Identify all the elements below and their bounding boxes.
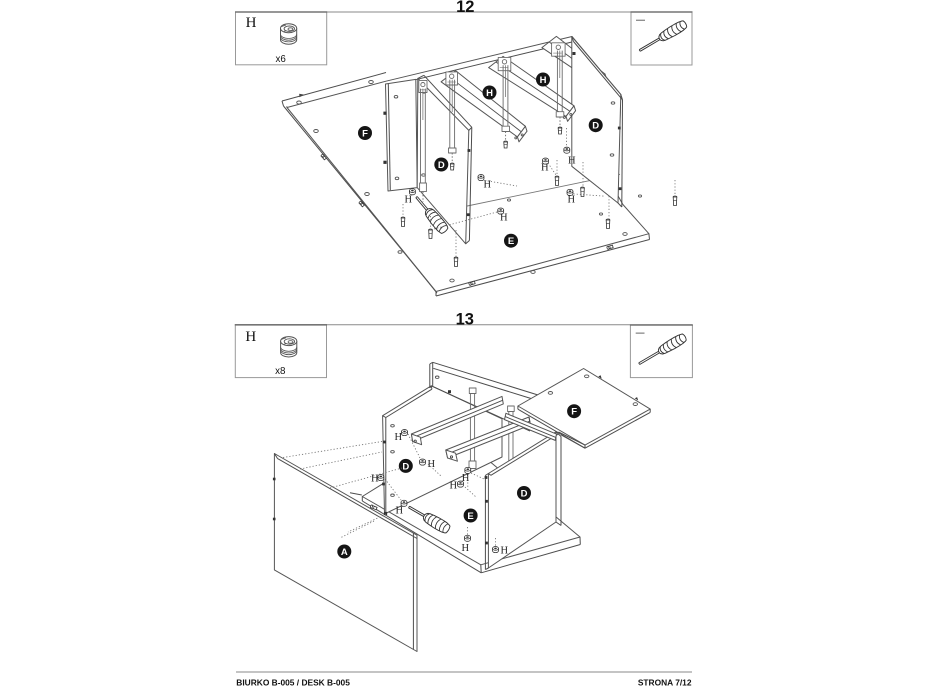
svg-text:A: A [341,547,348,558]
svg-text:H: H [462,543,470,554]
svg-text:H: H [450,481,458,492]
svg-text:H: H [395,432,403,443]
svg-text:x8: x8 [275,366,286,377]
svg-text:D: D [592,121,599,132]
svg-text:BIURKO B-005 / DESK B-005: BIURKO B-005 / DESK B-005 [236,678,350,686]
svg-text:H: H [501,546,509,557]
svg-text:H: H [568,156,576,167]
svg-text:H: H [405,195,413,206]
svg-text:H: H [396,506,404,517]
svg-text:D: D [438,160,445,171]
svg-text:D: D [402,461,409,472]
svg-text:STRONA 7/12: STRONA 7/12 [638,678,692,686]
svg-text:13: 13 [456,310,474,328]
svg-text:H: H [371,474,379,485]
svg-text:H: H [245,329,256,345]
svg-text:12: 12 [456,0,474,16]
svg-text:E: E [508,236,514,247]
svg-text:H: H [484,180,492,191]
svg-text:H: H [568,195,576,206]
svg-text:H: H [541,163,549,174]
svg-text:F: F [571,407,577,418]
svg-text:x6: x6 [276,54,287,65]
svg-text:E: E [467,511,473,522]
svg-text:H: H [486,88,493,99]
svg-text:D: D [521,488,528,499]
svg-text:H: H [500,213,508,224]
svg-text:H: H [462,473,470,484]
svg-text:H: H [540,75,547,86]
svg-text:H: H [246,15,257,31]
svg-text:F: F [362,128,368,139]
